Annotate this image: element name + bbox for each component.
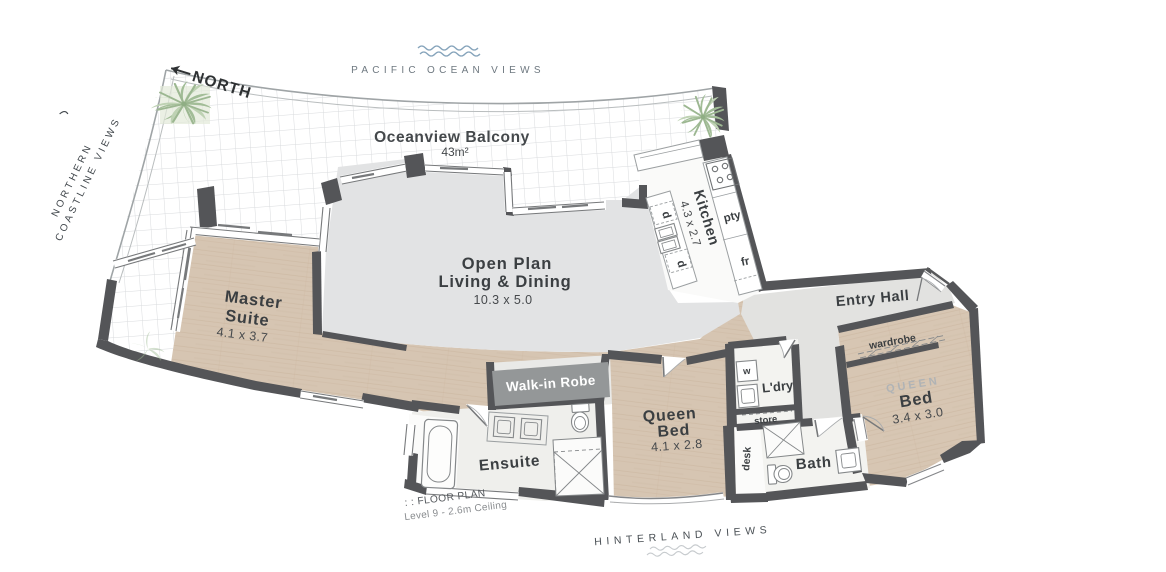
svg-text:Bath: Bath — [795, 454, 832, 473]
svg-text:43m²: 43m² — [441, 145, 468, 159]
svg-text:10.3 x 5.0: 10.3 x 5.0 — [474, 293, 533, 307]
svg-text:desk: desk — [740, 446, 754, 471]
svg-text:Oceanview Balcony: Oceanview Balcony — [374, 129, 530, 146]
svg-text:Living & Dining: Living & Dining — [439, 273, 572, 291]
svg-text:w: w — [742, 366, 752, 378]
svg-text:PACIFIC OCEAN VIEWS: PACIFIC OCEAN VIEWS — [351, 65, 545, 76]
svg-text:Open Plan: Open Plan — [462, 255, 553, 273]
